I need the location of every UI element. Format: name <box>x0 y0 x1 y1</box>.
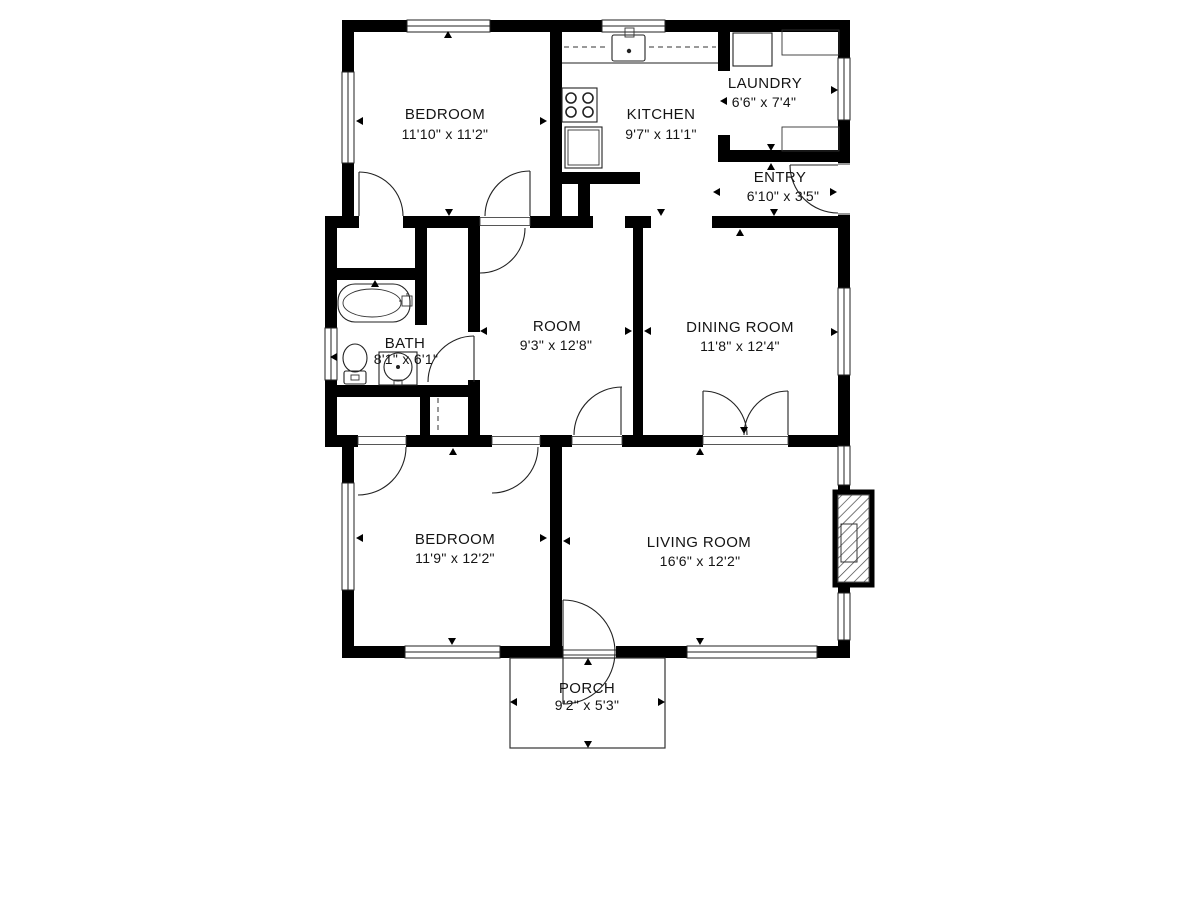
door-bedroom1-closet <box>359 172 403 216</box>
window <box>838 58 850 120</box>
wall-segment <box>718 150 840 162</box>
room-label-entry: ENTRY <box>754 169 807 186</box>
room-label-porch: PORCH <box>559 680 615 697</box>
kitchen-sink-icon <box>612 28 645 61</box>
wall-segment <box>625 216 651 228</box>
room-dims-porch: 9'2" x 5'3" <box>555 697 620 713</box>
washer-icon <box>733 33 772 66</box>
wall-segment <box>562 172 640 184</box>
room-dims-bedroom-2: 11'9" x 12'2" <box>415 550 495 566</box>
wall-segment <box>788 435 850 447</box>
window <box>342 72 354 163</box>
wall-segment <box>718 32 730 71</box>
refrigerator-icon <box>565 127 602 168</box>
window <box>838 446 850 485</box>
wall-segment <box>540 435 572 447</box>
room-label-bedroom-1: BEDROOM <box>405 106 485 123</box>
wall-segment <box>406 435 492 447</box>
room-dims-bedroom-1: 11'10" x 11'2" <box>402 126 489 142</box>
room-dims-laundry: 6'6" x 7'4" <box>732 94 797 110</box>
door-bedroom2-closet <box>358 437 406 496</box>
wall-segment <box>633 228 643 435</box>
wall-segment <box>325 268 427 280</box>
door-dining-french <box>703 391 788 445</box>
room-label-bedroom-2: BEDROOM <box>415 531 495 548</box>
wall-segment <box>550 447 562 646</box>
door-room <box>572 387 622 445</box>
wall-segment <box>712 216 850 228</box>
door-bedroom1 <box>485 171 530 216</box>
stove-icon <box>562 88 597 122</box>
room-label-living-room: LIVING ROOM <box>647 534 751 551</box>
wall-segment <box>325 385 480 397</box>
window <box>838 593 850 640</box>
room-label-dining-room: DINING ROOM <box>686 319 794 336</box>
room-label-kitchen: KITCHEN <box>627 106 696 123</box>
room-dims-room: 9'3" x 12'8" <box>520 337 593 353</box>
bathtub-icon <box>338 284 412 322</box>
door-bedroom2 <box>492 437 540 494</box>
window <box>407 20 490 32</box>
fireplace-icon <box>835 492 872 585</box>
wall-segment <box>420 397 430 435</box>
floor-plan-page: BEDROOM 11'10" x 11'2" KITCHEN 9'7" x 11… <box>0 0 1200 900</box>
window <box>838 288 850 375</box>
room-dims-dining-room: 11'8" x 12'4" <box>700 338 780 354</box>
room-dims-entry: 6'10" x 3'5" <box>747 188 820 204</box>
wall-segment <box>325 435 358 447</box>
room-dims-kitchen: 9'7" x 11'1" <box>625 126 697 142</box>
room-label-bath: BATH <box>385 335 426 352</box>
window <box>325 328 337 380</box>
entry-door-opening <box>838 163 850 215</box>
room-dims-living-room: 16'6" x 12'2" <box>660 553 741 569</box>
floor-plan-drawing: BEDROOM 11'10" x 11'2" KITCHEN 9'7" x 11… <box>0 0 1200 900</box>
window <box>405 646 500 658</box>
wall-segment <box>622 435 703 447</box>
window <box>602 20 665 32</box>
room-dims-bath: 8'1" x 6'1" <box>374 351 439 367</box>
door-hall <box>480 218 530 274</box>
wall-segment <box>550 32 562 216</box>
front-door-opening <box>563 646 616 658</box>
wall-segment <box>578 184 590 216</box>
wall-segment <box>468 228 480 332</box>
toilet-icon <box>343 344 367 384</box>
wall-segment <box>325 216 359 228</box>
wall-segment <box>530 216 593 228</box>
room-label-room: ROOM <box>533 318 581 335</box>
wall-segment <box>403 216 480 228</box>
window <box>687 646 817 658</box>
window <box>342 483 354 590</box>
room-label-laundry: LAUNDRY <box>728 75 802 92</box>
